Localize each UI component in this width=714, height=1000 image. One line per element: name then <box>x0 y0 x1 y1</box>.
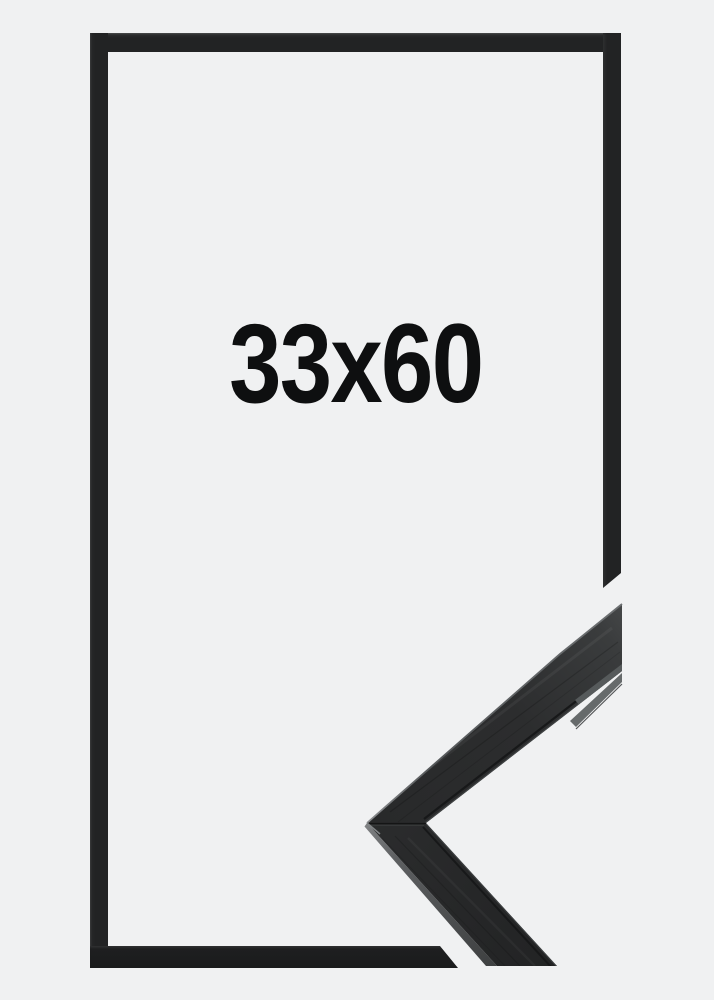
size-label: 33x60 <box>90 308 621 420</box>
frame-outline-top-bar <box>90 33 621 52</box>
frame-outline-bottom-bar <box>90 946 458 968</box>
size-label-text: 33x60 <box>229 308 482 420</box>
product-image-canvas: 33x60 <box>0 0 714 1000</box>
frame-outline-left-bar <box>90 33 108 968</box>
